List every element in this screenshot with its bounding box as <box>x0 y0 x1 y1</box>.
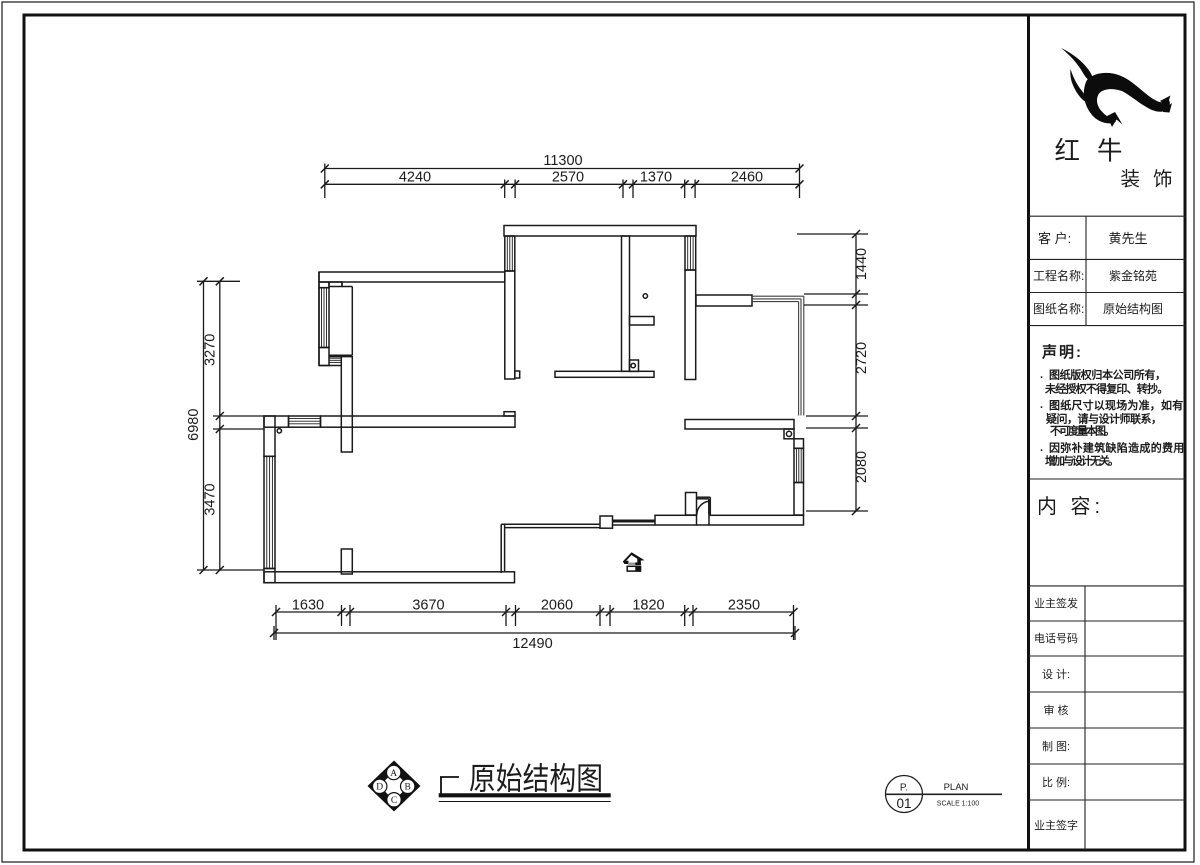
svg-text:比 例:: 比 例: <box>1042 775 1070 789</box>
svg-text:业主签字: 业主签字 <box>1034 818 1078 832</box>
svg-text:1630: 1630 <box>292 598 324 614</box>
svg-text:.: . <box>1040 442 1043 454</box>
svg-text:内 容:: 内 容: <box>1037 495 1104 518</box>
svg-text:因弥补建筑缺陷造成的费用: 因弥补建筑缺陷造成的费用 <box>1049 441 1185 455</box>
svg-text:SCALE 1:100: SCALE 1:100 <box>937 801 980 808</box>
svg-text:声明:: 声明: <box>1041 343 1083 361</box>
svg-text:4240: 4240 <box>399 170 431 186</box>
svg-text:D: D <box>376 783 383 793</box>
svg-text:.: . <box>1040 399 1043 411</box>
svg-text:3270: 3270 <box>203 334 219 366</box>
svg-text:装饰: 装饰 <box>1120 169 1185 191</box>
svg-text:紫金铭苑: 紫金铭苑 <box>1109 268 1157 283</box>
svg-text:疑问，请与设计师联系，: 疑问，请与设计师联系， <box>1046 412 1162 426</box>
svg-text:图纸版权归本公司所有，: 图纸版权归本公司所有， <box>1049 368 1166 382</box>
svg-text:P.: P. <box>900 783 908 794</box>
svg-text:12490: 12490 <box>512 636 552 652</box>
svg-text:1440: 1440 <box>854 248 870 280</box>
svg-text:B: B <box>405 783 411 793</box>
svg-text:3470: 3470 <box>203 483 219 515</box>
svg-text:未经授权不得复印、转抄。: 未经授权不得复印、转抄。 <box>1044 382 1167 396</box>
svg-text:审 核: 审 核 <box>1043 703 1068 717</box>
svg-text:工程名称:: 工程名称: <box>1033 268 1084 283</box>
svg-text:A: A <box>390 769 397 779</box>
svg-text:原始结构图: 原始结构图 <box>469 762 603 797</box>
svg-text:不可度量本图。: 不可度量本图。 <box>1050 424 1113 438</box>
svg-text:2350: 2350 <box>728 598 760 614</box>
svg-text:2570: 2570 <box>552 170 584 186</box>
svg-text:11300: 11300 <box>543 153 582 169</box>
svg-text:红牛: 红牛 <box>1054 138 1139 166</box>
svg-text:6980: 6980 <box>186 409 202 441</box>
svg-text:增加与设计无关。: 增加与设计无关。 <box>1045 454 1117 468</box>
svg-text:原始结构图: 原始结构图 <box>1103 301 1163 316</box>
svg-text:2080: 2080 <box>854 451 870 483</box>
svg-text:制 图:: 制 图: <box>1042 740 1070 753</box>
svg-text:1820: 1820 <box>632 598 664 614</box>
svg-text:2460: 2460 <box>731 170 763 186</box>
svg-text:图纸尺寸以现场为准，如有: 图纸尺寸以现场为准，如有 <box>1049 398 1183 412</box>
svg-text:2060: 2060 <box>541 598 573 614</box>
svg-text:C: C <box>391 796 397 806</box>
svg-text:1370: 1370 <box>640 170 672 186</box>
svg-text:图纸名称:: 图纸名称: <box>1033 301 1084 316</box>
svg-text:设 计:: 设 计: <box>1042 668 1070 681</box>
svg-text:业主签发: 业主签发 <box>1034 596 1078 610</box>
svg-text:PLAN: PLAN <box>944 782 969 793</box>
svg-text:客 户:: 客 户: <box>1038 231 1071 246</box>
svg-text:.: . <box>1040 369 1043 381</box>
svg-text:黄先生: 黄先生 <box>1108 231 1147 246</box>
svg-text:电话号码: 电话号码 <box>1034 632 1078 645</box>
svg-text:01: 01 <box>896 796 911 811</box>
svg-text:3670: 3670 <box>412 598 444 614</box>
svg-text:2720: 2720 <box>854 342 870 374</box>
